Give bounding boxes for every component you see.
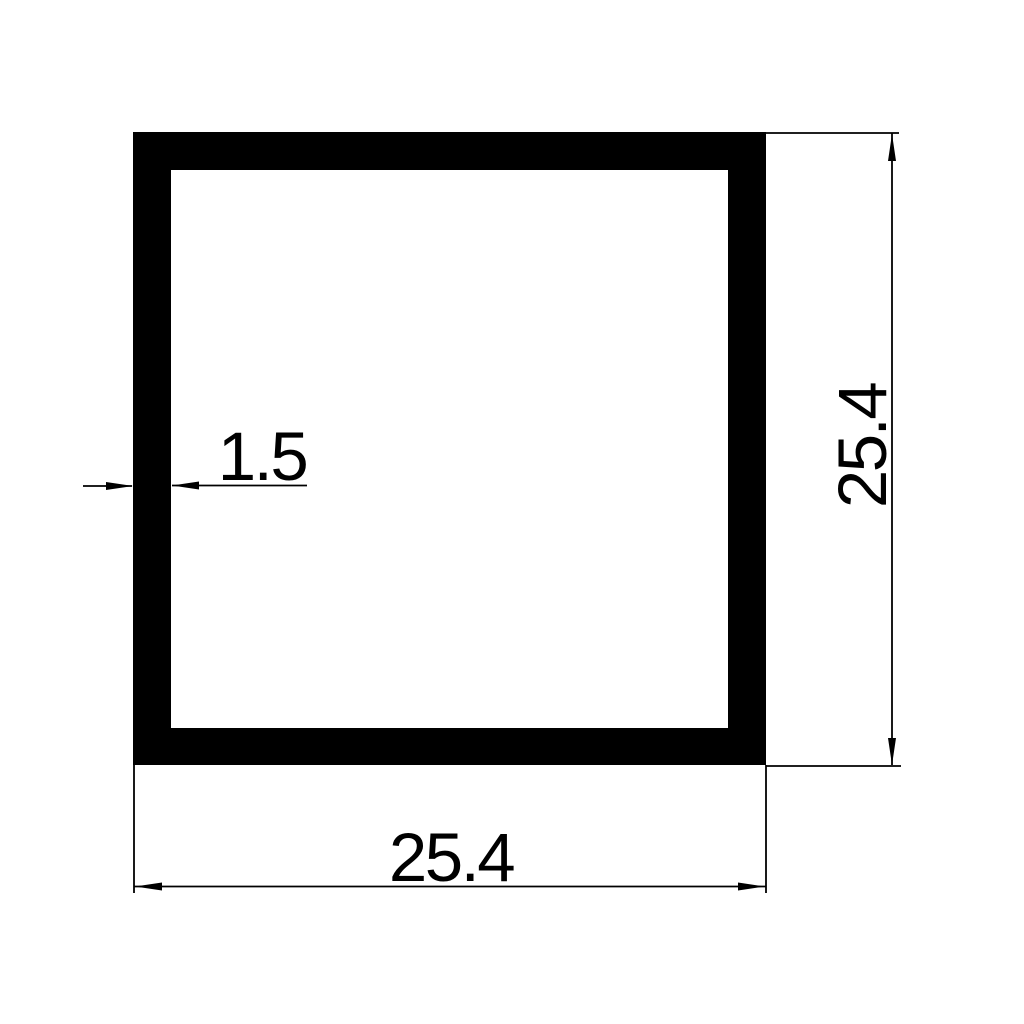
wall-thickness-arrow-outer: [106, 482, 133, 490]
drawing-canvas: 1.5 25.4 25.4: [0, 0, 1024, 1024]
width-dimension-label: 25.4: [389, 819, 514, 896]
width-arrow-right: [738, 883, 765, 891]
height-arrow-bottom: [888, 738, 896, 765]
width-arrow-left: [135, 883, 162, 891]
wall-thickness-label: 1.5: [218, 418, 307, 495]
height-dimension-label: 25.4: [824, 383, 901, 508]
height-dimension: 25.4: [766, 133, 901, 766]
height-arrow-top: [888, 134, 896, 161]
width-dimension: 25.4: [134, 765, 766, 896]
technical-drawing-svg: 1.5 25.4 25.4: [0, 0, 1024, 1024]
